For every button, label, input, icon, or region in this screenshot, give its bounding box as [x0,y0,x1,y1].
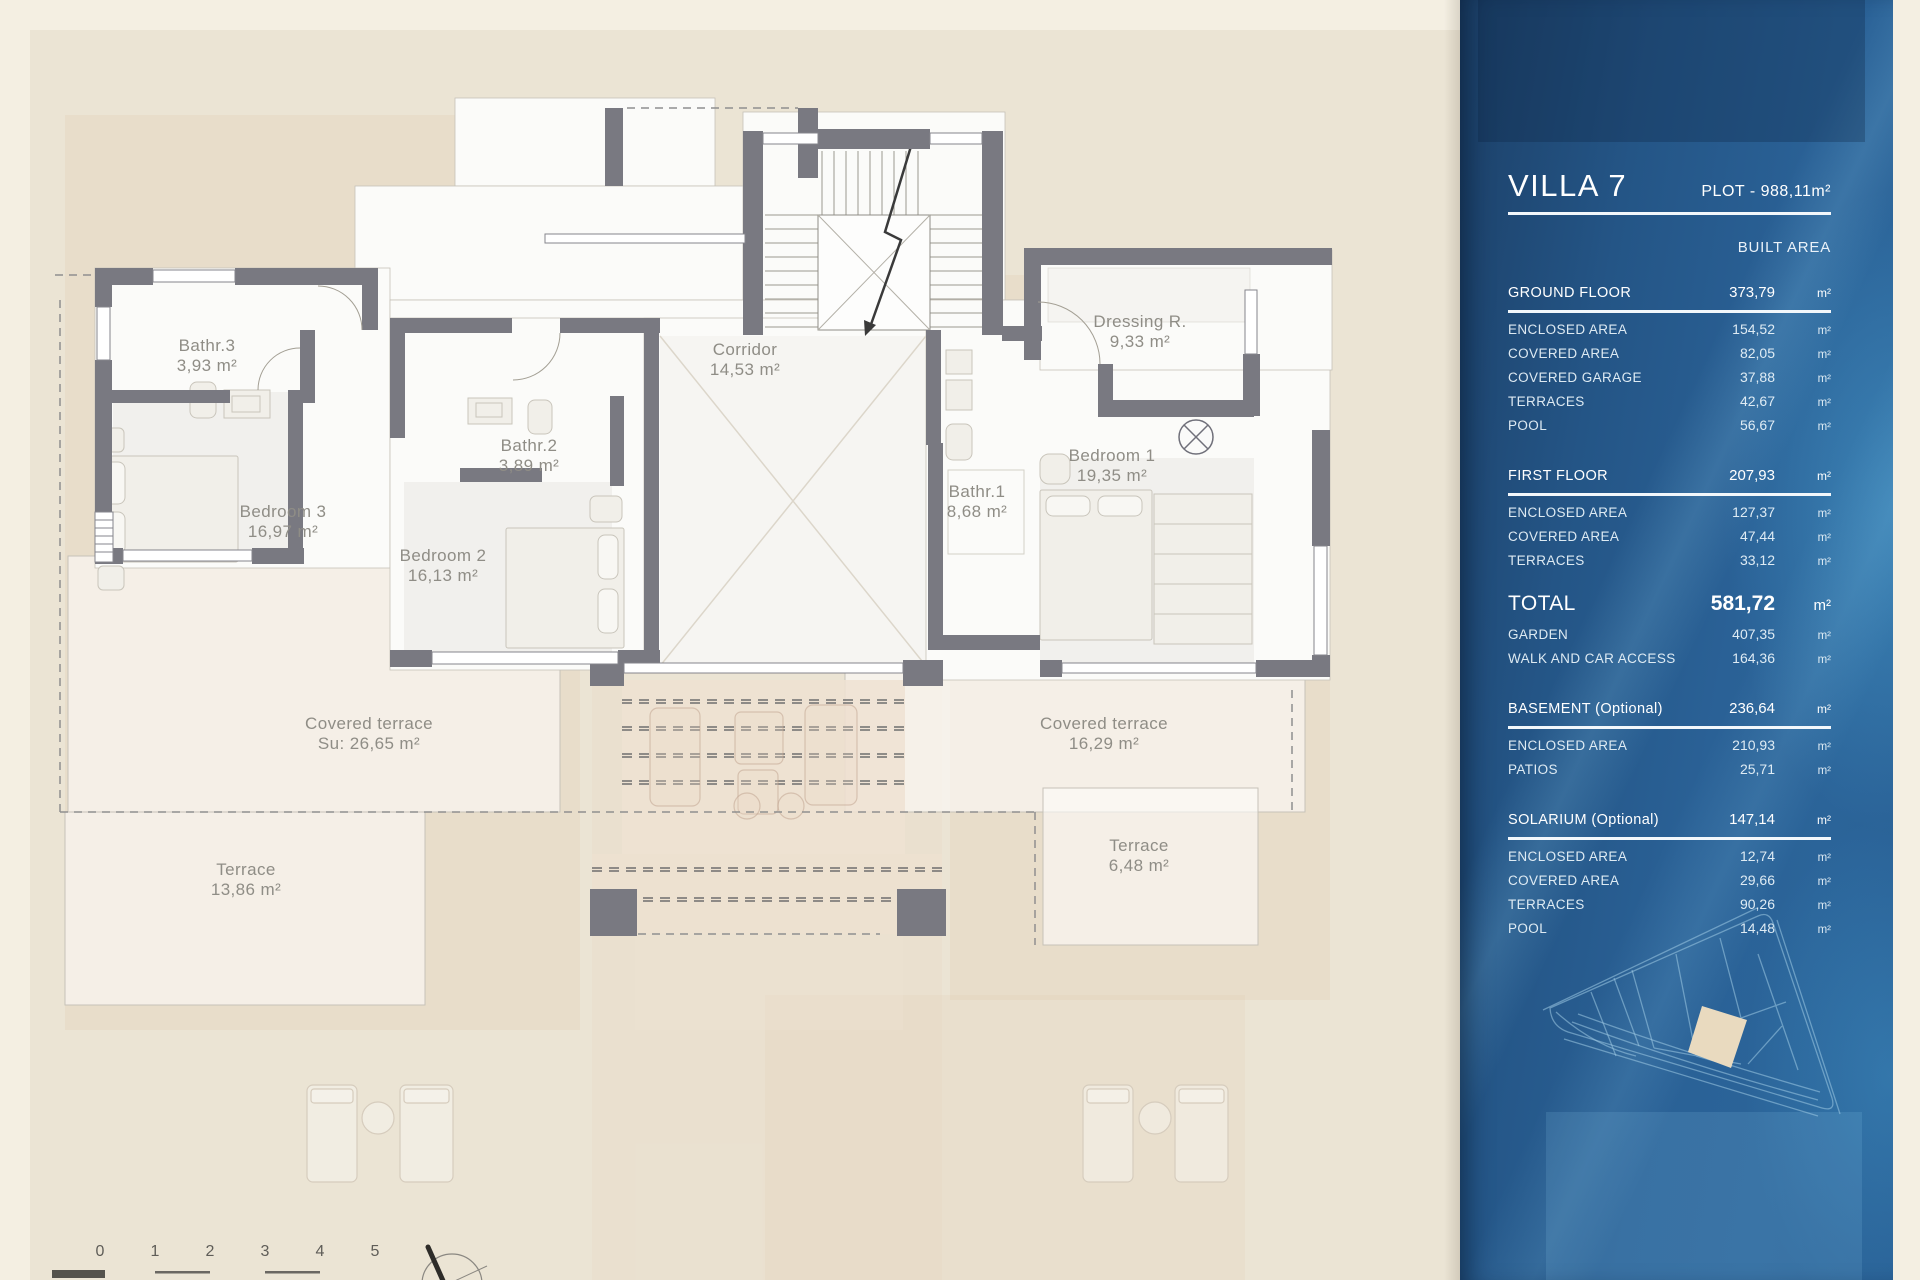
section-header-solarium-optional-val: 147,14 [1683,811,1775,828]
row-covered-garage-val: 37,88 [1683,369,1775,385]
sidebar-top-panel [1478,0,1865,142]
row-covered-garage-lbl: COVERED GARAGE [1508,370,1683,385]
row-covered-area-lbl: COVERED AREA [1508,873,1683,888]
row-patios-lbl: PATIOS [1508,762,1683,777]
row-terraces-val: 42,67 [1683,393,1775,409]
row-covered-area-unit: m² [1775,876,1831,888]
section-rule [1508,493,1831,496]
sidebar-header: VILLA 7 PLOT - 988,11m² BUILT AREA [1508,168,1831,256]
built-area-label: BUILT AREA [1508,239,1831,256]
section-header-ground-floor-val: 373,79 [1683,284,1775,301]
section-header-total-unit: m² [1775,597,1831,614]
section-rule [1508,726,1831,729]
row-garden: GARDEN407,35m² [1460,626,1893,650]
row-terraces-unit: m² [1775,556,1831,568]
section-header-ground-floor: GROUND FLOOR373,79m² [1460,284,1893,306]
section-header-total-lbl: TOTAL [1508,592,1683,616]
section-rule [1508,837,1831,840]
section-header-total-val: 581,72 [1683,592,1775,616]
section-header-solarium-optional: SOLARIUM (Optional)147,14m² [1460,811,1893,833]
section-header-first-floor: FIRST FLOOR207,93m² [1460,467,1893,489]
section-rule [1508,310,1831,313]
row-enclosed-area-val: 12,74 [1683,848,1775,864]
sidebar-bottom-panel [1546,1112,1862,1280]
row-enclosed-area-unit: m² [1775,508,1831,520]
row-covered-area-lbl: COVERED AREA [1508,529,1683,544]
row-walk-and-car-access-unit: m² [1775,654,1831,666]
row-enclosed-area-lbl: ENCLOSED AREA [1508,738,1683,753]
row-enclosed-area: ENCLOSED AREA210,93m² [1460,737,1893,761]
row-covered-garage-unit: m² [1775,373,1831,385]
central-steps-terrace [592,680,942,1030]
row-walk-and-car-access-val: 164,36 [1683,650,1775,666]
row-pool-unit: m² [1775,421,1831,433]
highlighted-plot [1688,1006,1747,1068]
section-header-ground-floor-unit: m² [1775,286,1831,300]
row-covered-garage: COVERED GARAGE37,88m² [1460,369,1893,393]
row-terraces-lbl: TERRACES [1508,553,1683,568]
row-covered-area-val: 47,44 [1683,528,1775,544]
row-enclosed-area-lbl: ENCLOSED AREA [1508,505,1683,520]
section-total: TOTAL581,72m²GARDEN407,35m²WALK AND CAR … [1460,592,1893,674]
row-enclosed-area-lbl: ENCLOSED AREA [1508,849,1683,864]
section-header-solarium-optional-unit: m² [1775,813,1831,827]
row-covered-area-unit: m² [1775,532,1831,544]
area-table: GROUND FLOOR373,79m²ENCLOSED AREA154,52m… [1460,284,1893,944]
row-enclosed-area-val: 210,93 [1683,737,1775,753]
row-enclosed-area: ENCLOSED AREA12,74m² [1460,848,1893,872]
row-pool-val: 56,67 [1683,417,1775,433]
row-pool-lbl: POOL [1508,418,1683,433]
row-pool: POOL56,67m² [1460,417,1893,441]
row-terraces-lbl: TERRACES [1508,394,1683,409]
row-terraces-unit: m² [1775,397,1831,409]
section-header-basement-optional-lbl: BASEMENT (Optional) [1508,701,1683,717]
row-covered-area-unit: m² [1775,349,1831,361]
row-covered-area-val: 82,05 [1683,345,1775,361]
floor-plan-drawing [0,0,1460,1280]
row-garden-unit: m² [1775,630,1831,642]
section-basement-optional: BASEMENT (Optional)236,64m²ENCLOSED AREA… [1460,700,1893,785]
row-enclosed-area-val: 154,52 [1683,321,1775,337]
row-covered-area: COVERED AREA29,66m² [1460,872,1893,896]
outdoor-sofa-set [650,705,857,819]
section-header-first-floor-val: 207,93 [1683,467,1775,484]
section-ground-floor: GROUND FLOOR373,79m²ENCLOSED AREA154,52m… [1460,284,1893,441]
row-covered-area: COVERED AREA82,05m² [1460,345,1893,369]
section-header-solarium-optional-lbl: SOLARIUM (Optional) [1508,812,1683,828]
row-enclosed-area-lbl: ENCLOSED AREA [1508,322,1683,337]
row-terraces: TERRACES33,12m² [1460,552,1893,576]
title-rule [1508,212,1831,215]
villa-title: VILLA 7 [1508,168,1627,204]
section-header-first-floor-lbl: FIRST FLOOR [1508,468,1683,484]
ceiling-symbol [1179,420,1213,454]
north-compass-icon [418,1247,487,1280]
row-enclosed-area: ENCLOSED AREA127,37m² [1460,504,1893,528]
sheet-edge-shadow [1444,0,1460,1280]
row-enclosed-area-unit: m² [1775,325,1831,337]
row-covered-area: COVERED AREA47,44m² [1460,528,1893,552]
section-header-ground-floor-lbl: GROUND FLOOR [1508,285,1683,301]
section-header-basement-optional-unit: m² [1775,702,1831,716]
row-patios-val: 25,71 [1683,761,1775,777]
section-header-basement-optional: BASEMENT (Optional)236,64m² [1460,700,1893,722]
section-first-floor: FIRST FLOOR207,93m²ENCLOSED AREA127,37m²… [1460,467,1893,576]
row-enclosed-area-val: 127,37 [1683,504,1775,520]
row-terraces-val: 33,12 [1683,552,1775,568]
row-garden-lbl: GARDEN [1508,627,1683,642]
row-enclosed-area-unit: m² [1775,852,1831,864]
row-patios: PATIOS25,71m² [1460,761,1893,785]
info-sidebar: VILLA 7 PLOT - 988,11m² BUILT AREA GROUN… [1460,0,1893,1280]
section-header-first-floor-unit: m² [1775,469,1831,483]
section-header-total: TOTAL581,72m² [1460,592,1893,626]
scale-bar [52,1270,320,1278]
section-header-basement-optional-val: 236,64 [1683,700,1775,717]
row-garden-val: 407,35 [1683,626,1775,642]
plot-area-label: PLOT - 988,11m² [1701,183,1831,201]
row-covered-area-val: 29,66 [1683,872,1775,888]
row-enclosed-area-unit: m² [1775,741,1831,753]
row-terraces: TERRACES42,67m² [1460,393,1893,417]
row-enclosed-area: ENCLOSED AREA154,52m² [1460,321,1893,345]
row-walk-and-car-access-lbl: WALK AND CAR ACCESS [1508,651,1683,666]
row-walk-and-car-access: WALK AND CAR ACCESS164,36m² [1460,650,1893,674]
site-plan-map [1536,908,1893,1128]
row-patios-unit: m² [1775,765,1831,777]
row-covered-area-lbl: COVERED AREA [1508,346,1683,361]
